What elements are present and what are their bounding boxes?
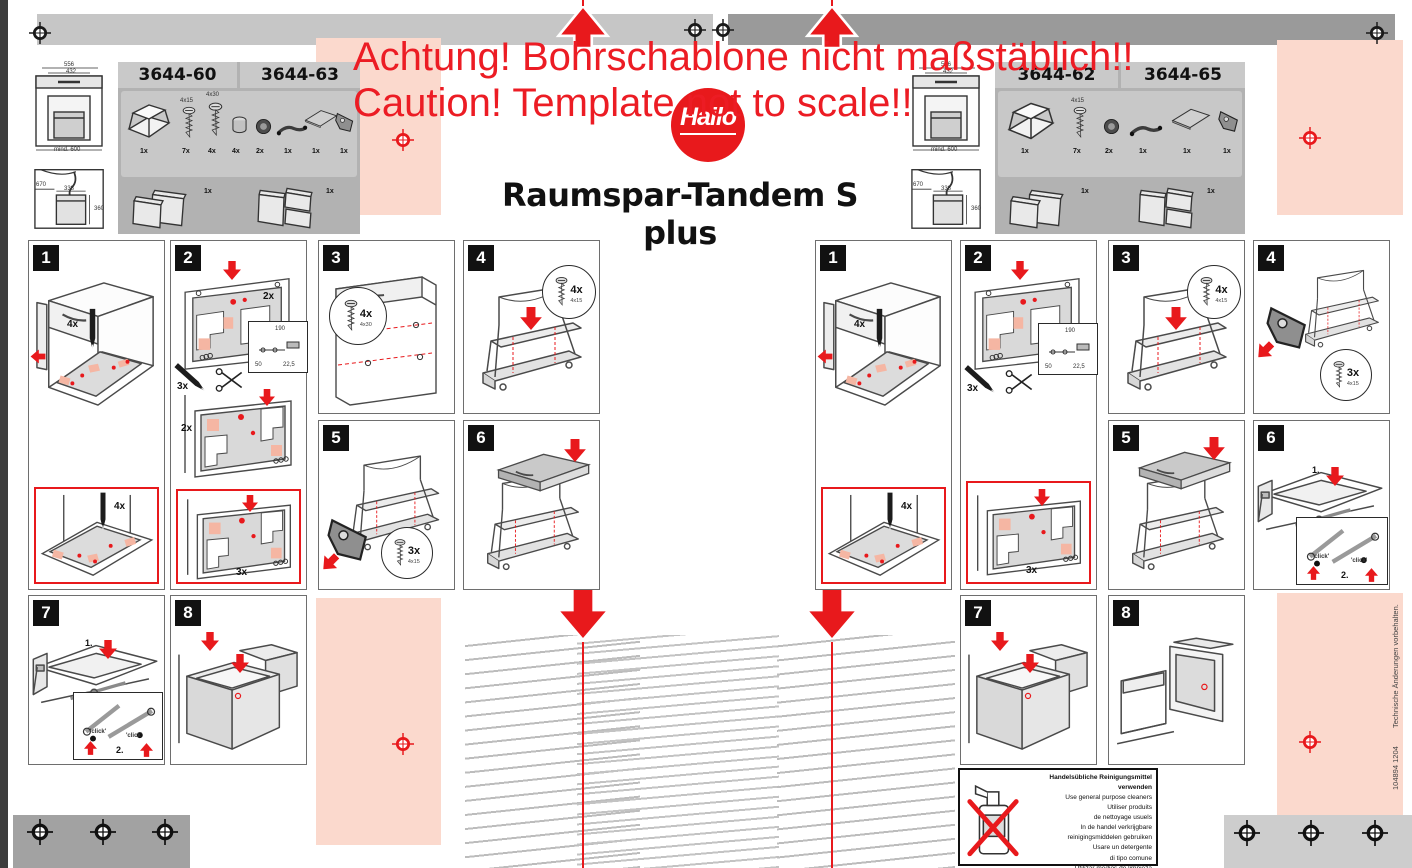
cleaning-line: di tipo comune [1030,854,1152,864]
arrow-down-icon [201,632,219,651]
dim-label: 670 [913,182,923,188]
arrow-up-icon [140,743,153,757]
template-qty: 3x [236,567,247,578]
click-label: 'click' [90,729,106,735]
step-badge: 7 [965,600,991,626]
step-panel-right-1: 1 4x 4x [815,240,952,590]
arrow-down-icon [231,654,249,673]
screw-size: 4x15 [1347,381,1359,387]
dim-label: 50 [255,362,262,368]
bins-drawing [967,624,1091,758]
waste-bins-icon [1135,184,1197,230]
part-qty: 4x [232,148,240,155]
part-qty: 1x [284,148,292,155]
dimension-inset: 190 50 22,5 [1038,323,1098,375]
alignment-arrow-down [560,590,606,638]
hatch-band [777,635,955,868]
arrow-down-icon [223,261,241,280]
step-badge: 3 [323,245,349,271]
arrow-down-icon [1326,467,1344,486]
lid-shelf-icon [1171,104,1211,132]
step-badge: 2 [965,245,991,271]
bin-qty: 1x [326,188,334,195]
arrow-down-icon [1165,307,1187,330]
dim-label: 22,5 [1073,364,1085,370]
part-qty: 2x [1105,148,1113,155]
pencil-icon [885,491,895,531]
crosshair-icon [90,819,116,845]
crosshair-icon-red [392,733,414,755]
step-panel-left-7: 7 1. 'click' 'click' 2. [28,595,165,765]
step-badge: 7 [33,600,59,626]
hatch-area [465,635,955,868]
cleaning-line: In de handel verkrijgbare [1030,823,1152,833]
registration-area-top-right [1277,40,1403,215]
warning-text: Achtung! Bohrschablone nicht maßstäblich… [353,34,1133,126]
screw-qty: 4x [360,308,372,320]
template-qty: 3x [1026,565,1037,576]
doc-number: 104894 1204 [1391,746,1400,790]
product-panel-left: 556 432 mind. 600 670 338 360 3644-60 36… [28,62,360,234]
part-qty: 4x [208,148,216,155]
part-qty: 1x [340,148,348,155]
step-badge: 2 [175,245,201,271]
dim-label: 360 [971,206,981,212]
model-number: 3644-65 [1121,62,1245,88]
dim-label: 50 [1045,364,1052,370]
step-panel-right-4: 4 3x4x15 [1253,240,1390,414]
registration-area-bottom-left [316,598,441,845]
step-panel-right-5: 5 [1108,420,1245,590]
part-qty: 1x [1139,148,1147,155]
screw-callout: 3x4x15 [1320,349,1372,401]
sink-cabinet-drawing [28,158,114,236]
screw-qty: 3x [1347,367,1359,379]
screw-callout: 4x4x15 [1187,265,1241,319]
dim-label: 360 [94,206,104,212]
dim-label: mind. 600 [931,147,957,153]
click-inset: 'click' 'click' 2. [1296,517,1388,585]
step-panel-right-8: 8 [1108,595,1245,765]
pencil-icon [98,491,108,531]
step-panel-left-8: 8 [170,595,307,765]
crosshair-icon-red [1299,731,1321,753]
dim-label: 338 [64,186,74,192]
click-inset: 'click' 'click' 2. [73,692,163,760]
crosshair-icon [29,22,51,44]
pull-out-frame-icon [124,100,174,142]
crosshair-icon [1298,820,1324,846]
screw-size: 4x15 [1215,298,1227,304]
cabinet-dimensions-drawing [28,62,114,154]
scissors-icon [1005,369,1035,395]
screw-qty: 4x [570,284,582,296]
arrow-down-icon [1203,437,1225,460]
bin-qty: 1x [1207,188,1215,195]
warning-line-en: Caution! Template not to scale!! [353,80,1133,126]
arrow-up-icon [84,741,97,755]
cleaning-line: de nettoyage usuels [1030,813,1152,823]
dim-label: mind. 600 [54,147,80,153]
model-number: 3644-60 [118,62,237,88]
screw-size: 4x15 [408,559,420,565]
mark-qty: 4x [114,501,125,512]
sink-cabinet-drawing [905,158,991,236]
step-panel-left-1: 1 4x 4x [28,240,165,590]
step-panel-right-6: 6 1. 'click' 'click' 2. [1253,420,1390,590]
step-panel-left-3: 3 4x4x30 [318,240,455,414]
crosshair-icon [1362,820,1388,846]
fixing-disc-icon [255,118,272,135]
mark-qty: 4x [854,319,865,330]
no-solvent-illustration [960,770,1030,864]
mark-qty: 4x [67,319,78,330]
template-qty: 2x [181,423,192,434]
models-block: 3644-60 3644-63 1x 4x15 7x 4x30 4x 4x 2x… [118,62,360,234]
cut-qty: 3x [967,383,978,394]
detail-box: 4x [34,487,159,584]
drilling-template-sheet: Achtung! Bohrschablone nicht maßstäblich… [0,0,1412,868]
step-badge: 8 [1113,600,1139,626]
screw-icon [208,100,223,140]
screw-icon [1333,360,1345,390]
screw-qty: 4x [1215,284,1227,296]
arrow-down-icon [242,495,258,512]
step-panel-right-2: 2 3x 190 50 22,5 3x [960,240,1097,590]
click-label: 'click' [126,733,142,739]
screw-size: 4x30 [360,322,372,328]
dim-label: 670 [36,182,46,188]
screw-callout: 4x4x15 [542,265,596,319]
damper-bracket-icon [1217,108,1241,134]
fold-line [582,642,584,868]
lever-icon [1129,122,1163,138]
detail-box: 3x [176,489,301,584]
screw-qty: 3x [408,545,420,557]
screw-callout: 4x4x30 [329,287,387,345]
step-badge: 5 [323,425,349,451]
step-badge: 6 [468,425,494,451]
arrow-up-icon [1307,566,1320,580]
crossed-bottle-icon [964,776,1022,860]
step-panel-left-5: 5 3x4x15 [318,420,455,590]
dim-label: 338 [941,186,951,192]
crosshair-icon [1366,22,1388,44]
part-qty: 1x [1223,148,1231,155]
waste-bins-icon [254,184,316,230]
cleaning-text: Handelsübliche Reinigungsmittel verwende… [1030,770,1156,864]
part-qty: 7x [182,148,190,155]
screw-icon [344,298,358,334]
side-panel-template-drawing [175,391,301,483]
step-badge: 5 [1113,425,1139,451]
bin-qty: 1x [204,188,212,195]
screw-icon [555,276,568,308]
cleaning-line: Usare un detergente [1030,843,1152,853]
dim-label: 22,5 [283,362,295,368]
cleaning-line: reinigingsmiddelen gebruiken [1030,833,1152,843]
arrow-down-icon [99,640,117,659]
registration-area-bottom-right [1277,593,1403,815]
model-number: 3644-63 [240,62,360,88]
cleaning-line: Handelsübliche Reinigungsmittel verwende… [1030,773,1152,793]
screw-size: 4x30 [206,92,219,98]
step-badge: 8 [175,600,201,626]
crosshair-icon [27,819,53,845]
step-badge: 1 [33,245,59,271]
rights-note: Technische Änderungen vorbehalten. [1391,604,1400,728]
finished-unit-drawing [1113,624,1241,760]
crosshair-icon-red [392,129,414,151]
bins-drawing [177,624,301,758]
screw-size: 4x15 [570,298,582,304]
part-qty: 1x [1183,148,1191,155]
part-qty: 1x [140,148,148,155]
lid-shelf-icon [304,106,338,130]
order-label: 1. [1312,465,1320,475]
dim-label: 432 [66,69,76,75]
arrow-down-icon [1021,654,1039,673]
fold-line [831,642,833,868]
screw-callout: 3x4x15 [381,527,433,579]
step-badge: 1 [820,245,846,271]
crosshair-icon [1234,820,1260,846]
dim-label: 190 [275,326,285,332]
cleaning-line: Utiliser produits [1030,803,1152,813]
screw-size: 4x15 [180,98,193,104]
screw-icon [182,106,196,140]
scissors-icon [215,367,245,393]
floor-template-drawing [36,493,158,583]
step-panel-right-7: 7 [960,595,1097,765]
click-label: 'click' [1351,558,1367,564]
template-qty: 2x [263,291,274,302]
arrow-left-icon [31,350,46,364]
step-panel-left-6: 6 [463,420,600,590]
waste-bins-icon [132,184,194,230]
crosshair-icon-red [1299,127,1321,149]
order-label: 1. [85,638,93,648]
pencil-icon [874,307,885,351]
part-qty: 7x [1073,148,1081,155]
arrow-left-icon [818,350,833,364]
cover-cap-icon [232,116,247,135]
arrow-down-icon [259,389,275,406]
step-panel-left-4: 4 4x4x15 [463,240,600,414]
dimension-inset: 190 50 22,5 [248,321,308,373]
cut-qty: 3x [177,381,188,392]
arrow-down-icon [520,307,542,330]
alignment-arrow-down [809,590,855,638]
detail-box: 3x [966,481,1091,584]
screw-icon [1200,276,1213,308]
waste-bins-icon [1009,184,1071,230]
dim-label: 190 [1065,328,1075,334]
arrow-down-icon [991,632,1009,651]
step-panel-right-3: 3 4x4x15 [1108,240,1245,414]
step-badge: 3 [1113,245,1139,271]
order-label: 2. [116,745,124,755]
hinge-hole-drawing [1045,334,1093,360]
crosshair-icon [152,819,178,845]
part-qty: 2x [256,148,264,155]
arrow-down-icon [1011,261,1029,280]
arrow-down-icon [564,439,586,462]
cleaning-line: Utilizar medios de limpieza convencional… [1030,864,1152,868]
hinge-hole-drawing [255,332,303,358]
screw-icon [394,538,406,568]
bin-qty: 1x [1081,188,1089,195]
detail-box: 4x [821,487,946,584]
arrow-down-icon [1034,489,1050,506]
step-panel-left-2: 2 2x 3x 190 50 22,5 2x 3x [170,240,307,590]
left-edge-strip [0,0,8,868]
order-label: 2. [1341,570,1349,580]
hatch-band [577,635,779,868]
pencil-icon [87,307,98,351]
step-badge: 4 [468,245,494,271]
warning-line-de: Achtung! Bohrschablone nicht maßstäblich… [353,34,1133,80]
step-badge: 4 [1258,245,1284,271]
cleaning-line: Use general purpose cleaners [1030,793,1152,803]
arrow-up-icon [1365,568,1378,582]
floor-template-drawing [823,493,945,583]
part-qty: 1x [312,148,320,155]
mark-qty: 4x [901,501,912,512]
dim-label: 556 [64,62,74,68]
step-badge: 6 [1258,425,1284,451]
part-qty: 1x [1021,148,1029,155]
cleaning-instructions-box: Handelsübliche Reinigungsmittel verwende… [958,768,1158,866]
click-label: 'click' [1313,554,1329,560]
